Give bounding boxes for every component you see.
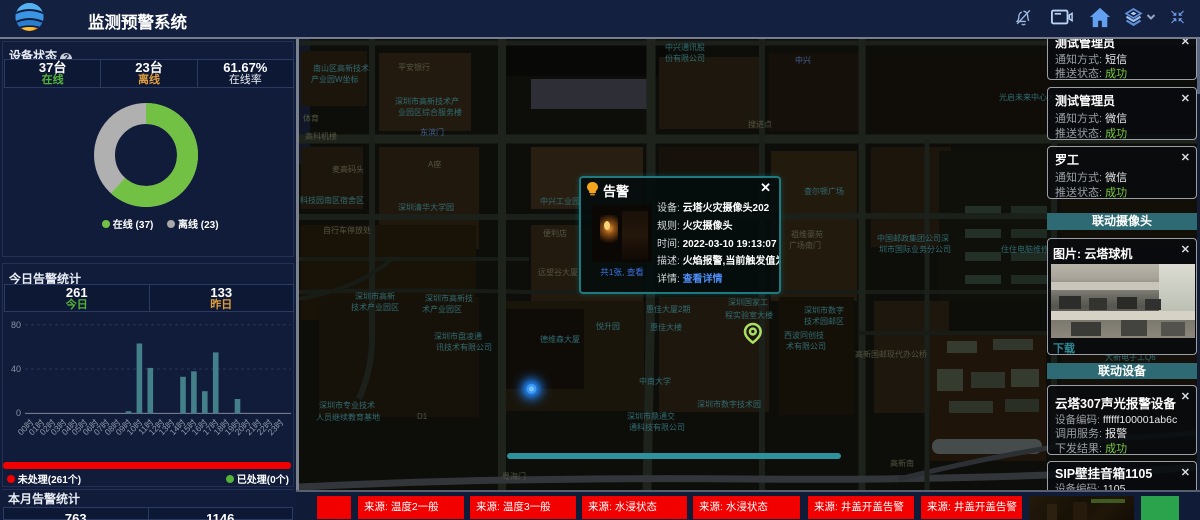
svg-text:80: 80 (11, 320, 21, 330)
svg-text:德维森大厦: 德维森大厦 (540, 334, 580, 344)
svg-text:深圳市盘凌通: 深圳市盘凌通 (434, 331, 482, 341)
svg-text:科技园南区宿舍区: 科技园南区宿舍区 (300, 195, 364, 205)
svg-text:0: 0 (16, 408, 21, 418)
svg-text:搜进点: 搜进点 (748, 119, 772, 129)
svg-text:自行车停放处: 自行车停放处 (323, 225, 371, 235)
svg-text:便利店: 便利店 (543, 228, 567, 238)
svg-text:麦高码头: 麦高码头 (332, 164, 364, 174)
svg-text:中兴: 中兴 (795, 55, 811, 65)
svg-text:中南大学: 中南大学 (639, 376, 671, 386)
svg-text:深圳市专业技术: 深圳市专业技术 (319, 400, 375, 410)
svg-text:深圳市数字技术园: 深圳市数字技术园 (697, 399, 761, 409)
svg-text:术产业园区: 术产业园区 (422, 304, 462, 314)
svg-text:惠佳大楼: 惠佳大楼 (650, 322, 682, 332)
svg-text:中国邮政集团公司深: 中国邮政集团公司深 (877, 233, 949, 243)
svg-text:南山区高新技术: 南山区高新技术 (313, 63, 369, 73)
svg-text:份有限公司: 份有限公司 (665, 53, 705, 63)
svg-text:悦升园: 悦升园 (596, 321, 620, 331)
svg-text:程实验室大楼: 程实验室大楼 (725, 310, 773, 320)
svg-text:技术产业园区: 技术产业园区 (351, 302, 399, 312)
svg-text:远望谷大厦: 远望谷大厦 (538, 267, 578, 277)
svg-text:术有限公司: 术有限公司 (786, 341, 826, 351)
svg-text:祖维豪苑: 祖维豪苑 (791, 229, 823, 239)
svg-text:深圳市高新技术产: 深圳市高新技术产 (395, 96, 459, 106)
svg-text:D1: D1 (417, 412, 428, 421)
svg-text:讯技术有限公司: 讯技术有限公司 (436, 342, 492, 352)
svg-text:粤海门: 粤海门 (502, 471, 526, 481)
svg-text:深圳市鼎通交: 深圳市鼎通交 (627, 411, 675, 421)
svg-text:高科机楼: 高科机楼 (305, 131, 337, 141)
svg-text:西波同创技: 西波同创技 (784, 330, 824, 340)
svg-text:中兴通讯股: 中兴通讯股 (665, 42, 705, 52)
svg-text:40: 40 (11, 364, 21, 374)
svg-text:体育: 体育 (303, 113, 319, 123)
svg-text:高新南: 高新南 (890, 458, 914, 468)
svg-text:中兴工业园: 中兴工业园 (540, 196, 580, 206)
svg-text:住住电脑维修: 住住电脑维修 (1001, 244, 1049, 254)
svg-text:圳市国际业务分公司: 圳市国际业务分公司 (879, 244, 951, 254)
svg-text:产业园W坐标: 产业园W坐标 (311, 74, 359, 84)
svg-text:深圳市高新: 深圳市高新 (355, 291, 395, 301)
svg-text:业园区综合服务楼: 业园区综合服务楼 (398, 107, 462, 117)
svg-text:平安银行: 平安银行 (398, 62, 430, 72)
svg-text:深圳清华大学园: 深圳清华大学园 (398, 202, 454, 212)
svg-text:广场南门: 广场南门 (789, 240, 821, 250)
svg-text:查尔顿广场: 查尔顿广场 (804, 186, 844, 196)
svg-text:惠佳大厦2期: 惠佳大厦2期 (646, 304, 690, 314)
svg-text:人员继续教育基地: 人员继续教育基地 (316, 412, 380, 422)
svg-text:深圳国家工: 深圳国家工 (728, 297, 768, 307)
svg-text:A座: A座 (428, 159, 441, 169)
svg-text:东滨门: 东滨门 (420, 127, 444, 137)
svg-text:通科技有限公司: 通科技有限公司 (629, 422, 685, 432)
svg-text:技术园邮区: 技术园邮区 (804, 316, 844, 326)
svg-text:深圳市高新技: 深圳市高新技 (425, 293, 473, 303)
svg-text:高新国邮现代办公桥: 高新国邮现代办公桥 (855, 349, 927, 359)
svg-text:深圳市数字: 深圳市数字 (804, 305, 844, 315)
